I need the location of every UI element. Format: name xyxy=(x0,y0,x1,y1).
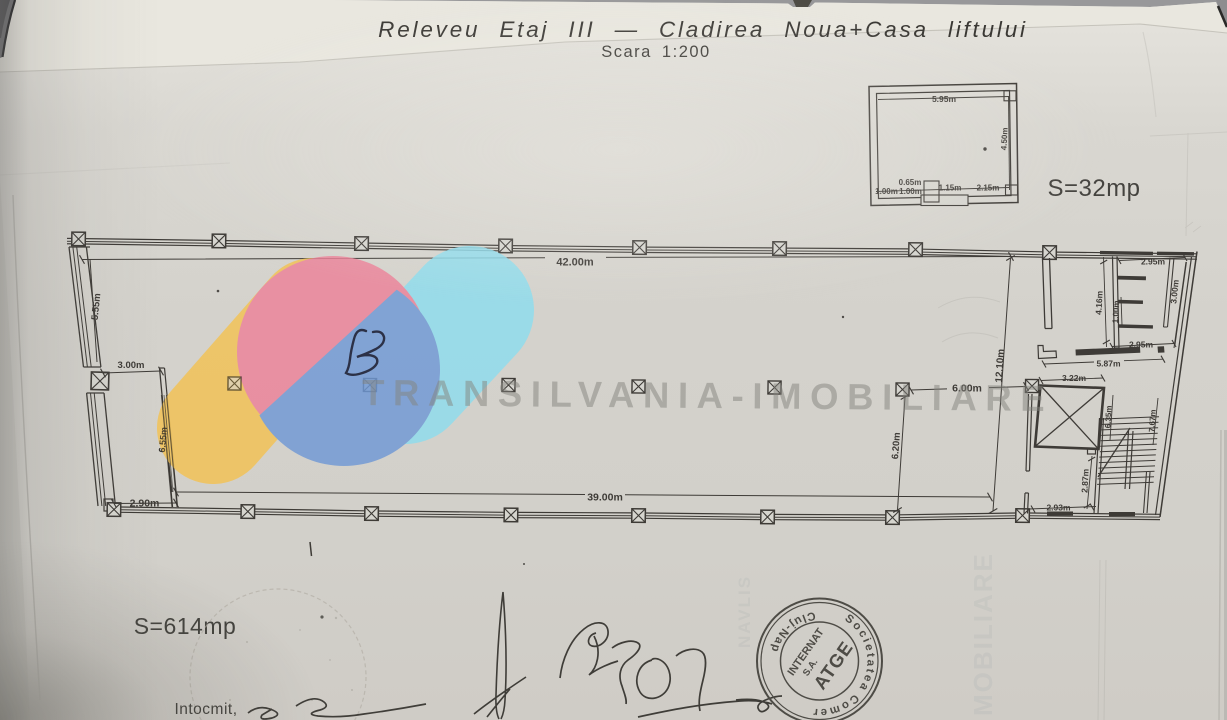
svg-text:2.95m: 2.95m xyxy=(1141,257,1166,267)
svg-text:2.87m: 2.87m xyxy=(1079,468,1090,493)
svg-text:TRANSILVANIA-IMOBILIARE: TRANSILVANIA-IMOBILIARE xyxy=(362,372,1054,419)
svg-text:6.20m: 6.20m xyxy=(890,432,903,460)
svg-text:1.00m: 1.00m xyxy=(1111,300,1121,323)
svg-text:7.67m: 7.67m xyxy=(1147,409,1158,432)
svg-text:4.16m: 4.16m xyxy=(1093,290,1104,315)
svg-text:NAVLIS: NAVLIS xyxy=(735,575,754,648)
svg-text:5.87m: 5.87m xyxy=(1096,359,1121,369)
svg-text:2.93m: 2.93m xyxy=(1046,503,1071,513)
svg-text:6.35m: 6.35m xyxy=(1103,405,1113,428)
svg-text:39.00m: 39.00m xyxy=(587,492,623,504)
svg-text:2.95m: 2.95m xyxy=(1129,340,1154,350)
svg-text:3.22m: 3.22m xyxy=(1062,373,1087,383)
svg-text:MOBILIARE: MOBILIARE xyxy=(968,552,998,716)
